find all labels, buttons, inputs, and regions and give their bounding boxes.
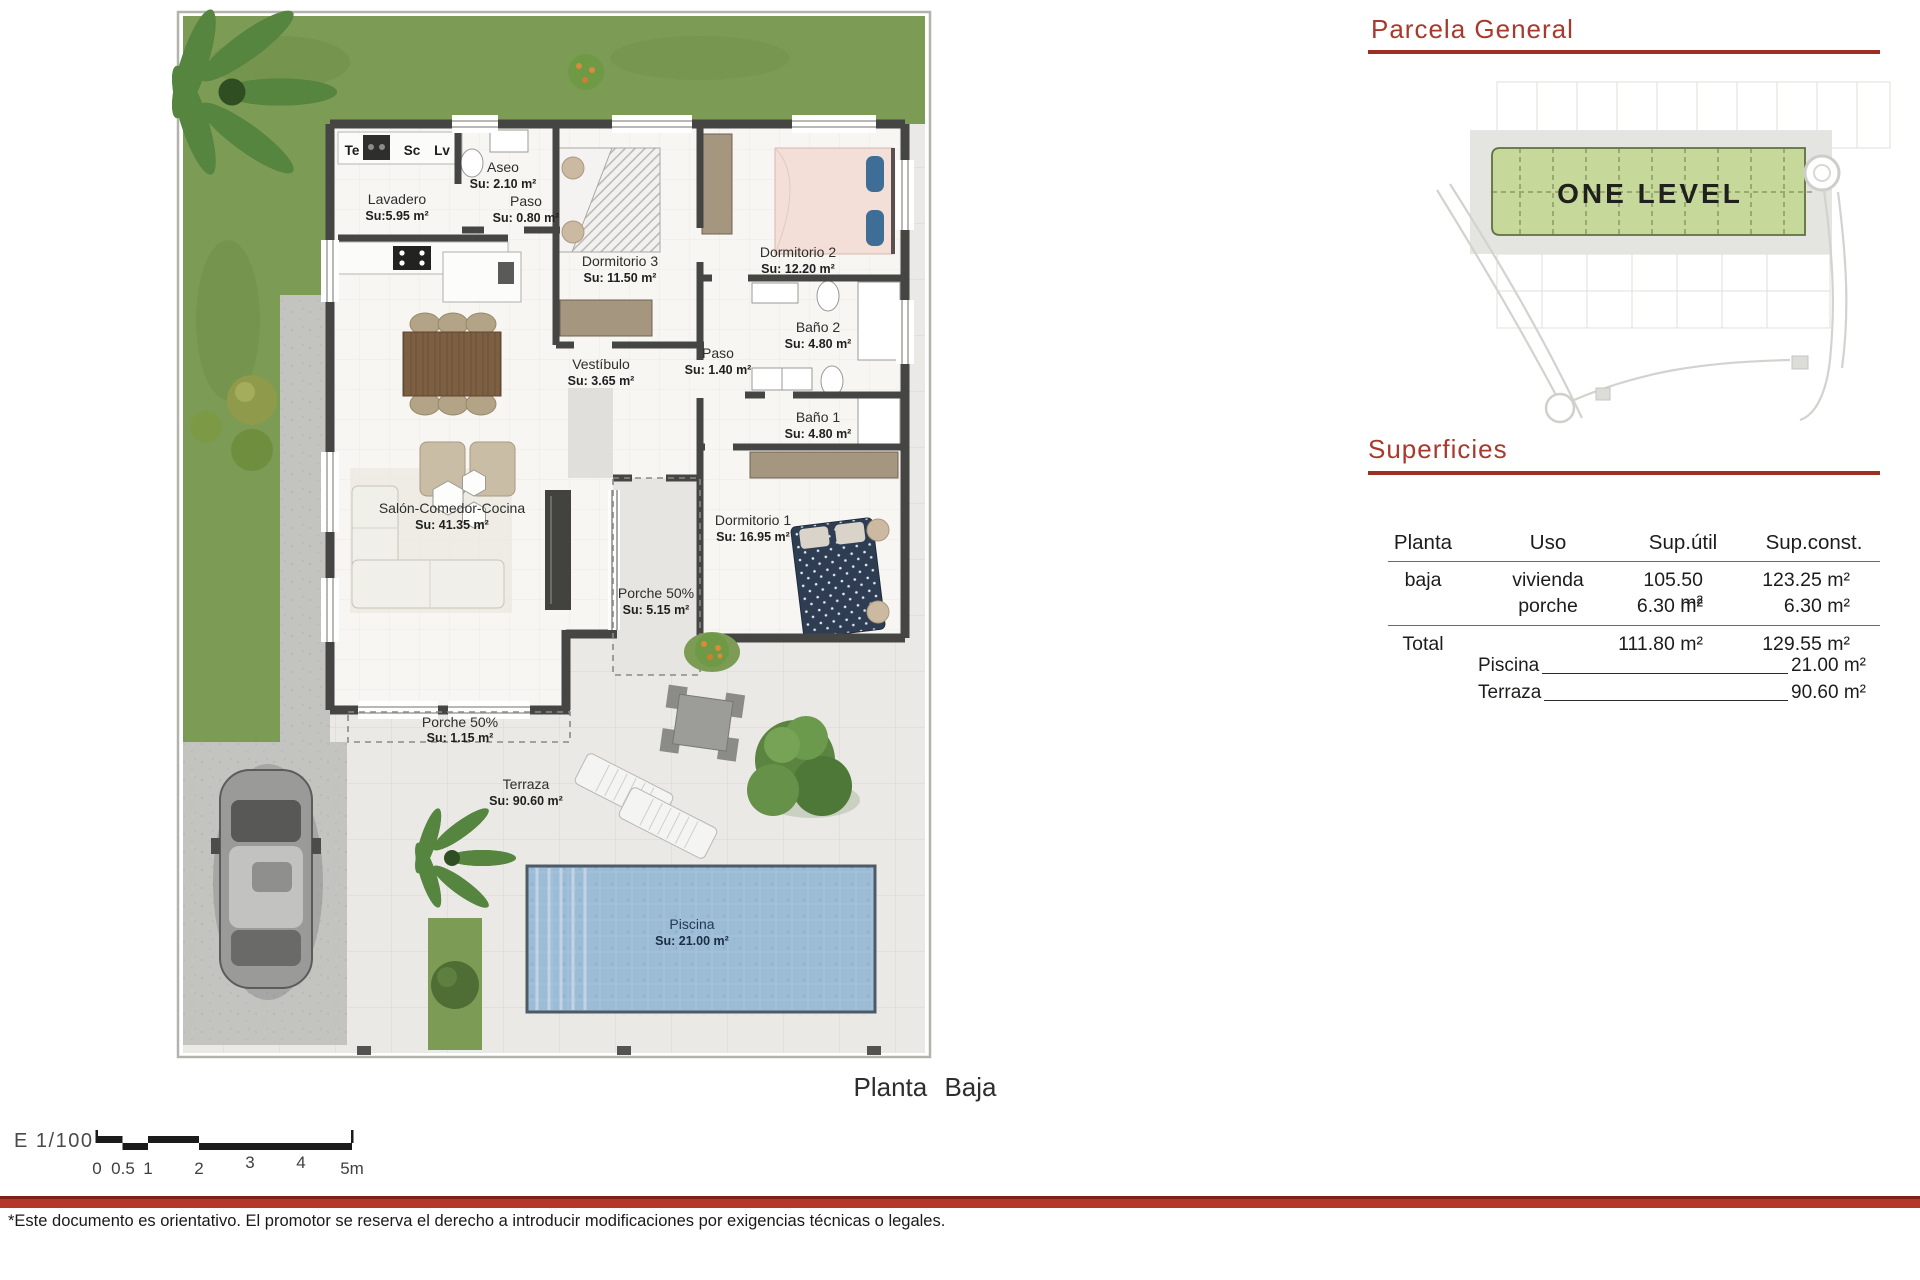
room-name: Aseo [487, 159, 519, 175]
total-label: Total [1368, 633, 1478, 656]
parcela-rule [1368, 50, 1880, 54]
one-level-label: ONE LEVEL [1557, 178, 1743, 209]
room-area: Su: 4.80 m² [785, 337, 852, 351]
room-name: Dormitorio 2 [760, 244, 836, 260]
site-plan: ONE LEVEL [1437, 82, 1890, 422]
bush [431, 961, 479, 1009]
bed-dormitorio3 [558, 148, 660, 252]
car [211, 764, 323, 1000]
roundabout-small [1546, 394, 1574, 422]
room-area: Su: 2.10 m² [470, 177, 537, 191]
room-area: Su: 3.65 m² [568, 374, 635, 388]
room-area: Su: 5.15 m² [623, 603, 690, 617]
tv-unit [545, 490, 571, 610]
room-name: Baño 2 [796, 319, 841, 335]
scale-tick: 2 [194, 1159, 203, 1178]
room-area: Su: 1.15 m² [427, 731, 494, 745]
room-name: Paso [510, 193, 542, 209]
room-area: Su: 21.00 m² [655, 934, 729, 948]
superficies-title: Superficies [1368, 434, 1880, 465]
extra-value: 90.60 m² [1791, 682, 1866, 704]
dining-table [403, 313, 501, 415]
lower-parcels [1497, 254, 1830, 328]
cell-util: 6.30 m² [1618, 595, 1748, 618]
flowering-bush [684, 632, 740, 672]
superficies-section: Superficies Planta Uso Sup.útil Sup.cons… [1368, 434, 1880, 675]
room-name: Vestíbulo [572, 356, 630, 372]
room-area: Su: 11.50 m² [584, 271, 657, 285]
plan-caption: Planta Baja [775, 1072, 1075, 1103]
scale-tick: 4 [296, 1153, 305, 1172]
scale-tick: 5m [340, 1159, 364, 1178]
col-header: Sup.útil [1618, 531, 1748, 555]
table-header: Planta Uso Sup.útil Sup.const. [1368, 531, 1880, 555]
extra-value: 21.00 m² [1791, 655, 1866, 677]
pouf [867, 601, 889, 623]
vestibule-tiles [568, 388, 613, 478]
scale-tick: 1 [143, 1159, 152, 1178]
site-building [1792, 356, 1808, 369]
kitchen-label-sc: Sc [404, 143, 421, 158]
bush-highlight [437, 967, 457, 987]
room-name: Dormitorio 3 [582, 253, 658, 269]
room-name: Piscina [669, 916, 714, 932]
closet-dormitorio2 [702, 134, 732, 234]
plan-sheet: Te Sc Lv Lavadero Su:5.95 m² Aseo Su: 2.… [0, 0, 1920, 1280]
extra-row: Piscina 21.00 m² [1478, 650, 1866, 677]
room-name: Salón-Comedor-Cocina [379, 500, 526, 516]
footer-rule [0, 1199, 1920, 1208]
scale-tick: 0.5 [111, 1159, 135, 1178]
room-area: Su: 0.80 m² [493, 211, 560, 225]
header-rule [1388, 561, 1880, 562]
kitchen-label-lv: Lv [434, 143, 450, 158]
total-rule [1388, 625, 1880, 626]
room-area: Su: 4.80 m² [785, 427, 852, 441]
extra-row: Terraza 90.60 m² [1478, 677, 1866, 704]
room-name: Porche 50% [422, 714, 498, 730]
closet-dormitorio3 [560, 300, 652, 336]
extra-label: Terraza [1478, 682, 1541, 704]
roundabout [1805, 156, 1839, 190]
room-area: Su: 12.20 m² [761, 262, 835, 276]
cell-planta [1368, 595, 1478, 618]
room-area: Su:5.95 m² [365, 209, 428, 223]
room-name: Porche 50% [618, 585, 694, 601]
cell-uso: porche [1478, 595, 1618, 618]
room-area: Su: 90.60 m² [489, 794, 563, 808]
closet-dormitorio1 [750, 452, 898, 478]
scale-label: E 1/100 [14, 1130, 93, 1152]
pouf [867, 519, 889, 541]
col-header: Sup.const. [1748, 531, 1880, 555]
room-name: Baño 1 [796, 409, 841, 425]
room-name: Paso [702, 345, 734, 361]
living-floor-ext [334, 634, 566, 706]
scale-bar: E 1/100 0 0.5 1 2 3 4 5m [14, 1130, 364, 1178]
table-row: porche 6.30 m² 6.30 m² [1368, 595, 1880, 618]
leader-line [1542, 673, 1788, 674]
extras-list: Piscina 21.00 m² Terraza 90.60 m² [1478, 650, 1866, 704]
glass-slider [608, 490, 620, 630]
room-name: Terraza [503, 776, 550, 792]
site-building [1596, 388, 1610, 400]
room-name: Dormitorio 1 [715, 512, 791, 528]
room-area: Su: 1.40 m² [685, 363, 752, 377]
scale-tick: 3 [245, 1153, 254, 1172]
parcela-title: Parcela General [1371, 14, 1574, 45]
col-header: Uso [1478, 531, 1618, 555]
cell-const: 6.30 m² [1748, 595, 1880, 618]
room-area: Su: 41.35 m² [415, 518, 489, 532]
kitchen-label-te: Te [345, 143, 360, 158]
leader-line [1544, 700, 1788, 701]
room-name: Lavadero [368, 191, 427, 207]
room-area: Su: 16.95 m² [716, 530, 790, 544]
flowering-shrub [568, 54, 604, 90]
scale-tick: 0 [92, 1159, 101, 1178]
disclaimer-text: *Este documento es orientativo. El promo… [8, 1212, 945, 1231]
col-header: Planta [1368, 531, 1478, 555]
extra-label: Piscina [1478, 655, 1539, 677]
bed-dormitorio2 [775, 148, 893, 254]
